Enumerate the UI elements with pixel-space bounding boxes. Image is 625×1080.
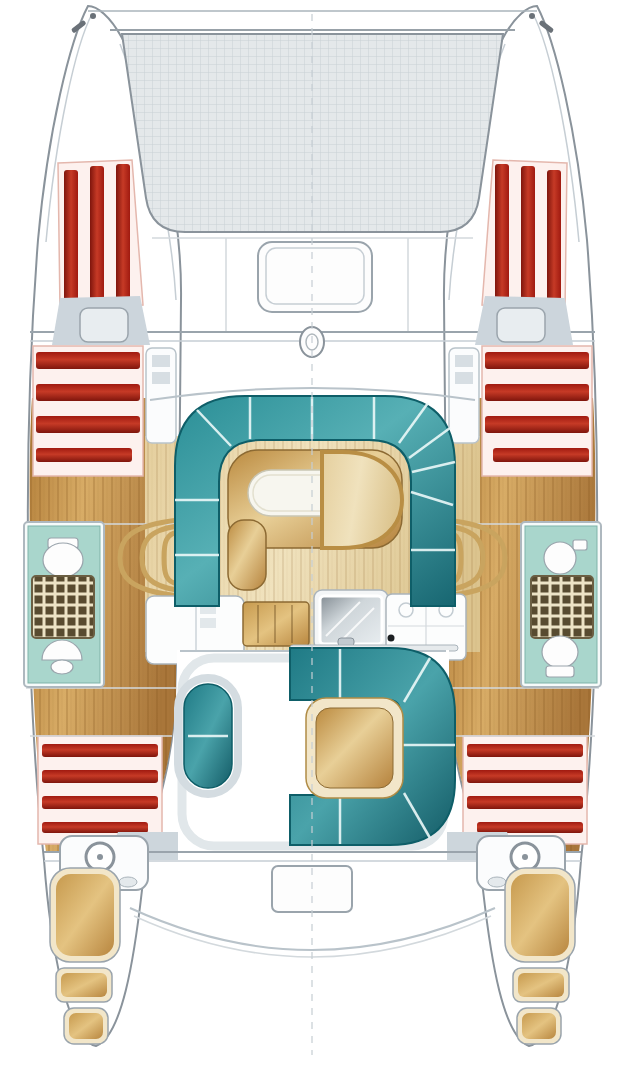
galley-fridge-top <box>243 602 309 646</box>
galley-sink <box>314 590 388 650</box>
port-toilet <box>43 538 83 577</box>
cockpit <box>177 648 455 852</box>
port-mid-berth <box>33 346 143 476</box>
catamaran-floor-plan <box>0 0 625 1080</box>
starboard-shower-tray <box>531 576 593 638</box>
starboard-mid-steps <box>449 348 479 443</box>
port-forward-berth <box>58 160 143 310</box>
starboard-head <box>521 522 601 687</box>
port-shower-tray <box>32 576 94 638</box>
port-mid-steps <box>146 348 176 443</box>
starboard-aft-berth <box>463 736 587 844</box>
starboard-mid-berth <box>482 346 592 476</box>
galley-dot-fitting <box>388 635 395 642</box>
port-aft-berth <box>38 736 162 844</box>
port-bow-platform <box>52 296 150 345</box>
port-head <box>24 522 104 687</box>
starboard-toilet <box>542 636 578 677</box>
anchor-locker-hatch <box>258 242 372 312</box>
cockpit-table <box>306 698 403 798</box>
starboard-forward-berth <box>482 160 567 310</box>
cockpit-side-bench <box>178 678 238 794</box>
salon-table-round-leaf <box>322 452 402 548</box>
starboard-bow-platform <box>475 296 573 345</box>
